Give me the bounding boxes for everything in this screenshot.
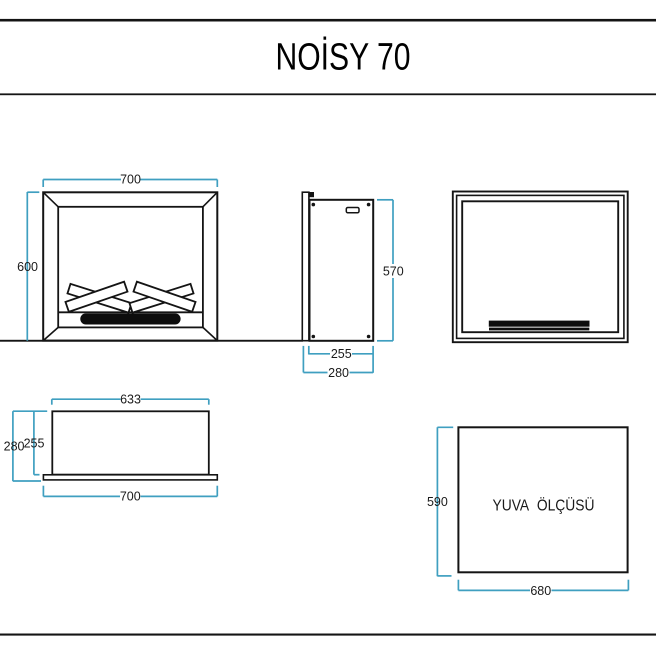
svg-text:NOİSY 70: NOİSY 70: [276, 36, 411, 79]
svg-text:280: 280: [4, 440, 25, 454]
svg-text:700: 700: [120, 490, 141, 504]
svg-text:255: 255: [331, 347, 352, 361]
svg-text:700: 700: [120, 173, 141, 187]
svg-text:680: 680: [530, 584, 551, 598]
svg-text:255: 255: [24, 437, 45, 451]
svg-text:280: 280: [328, 366, 349, 380]
svg-text:600: 600: [17, 260, 38, 274]
svg-text:590: 590: [427, 495, 448, 509]
svg-text:570: 570: [383, 264, 404, 278]
svg-text:YUVA ÖLÇÜSÜ: YUVA ÖLÇÜSÜ: [493, 497, 595, 515]
svg-text:633: 633: [120, 393, 141, 407]
